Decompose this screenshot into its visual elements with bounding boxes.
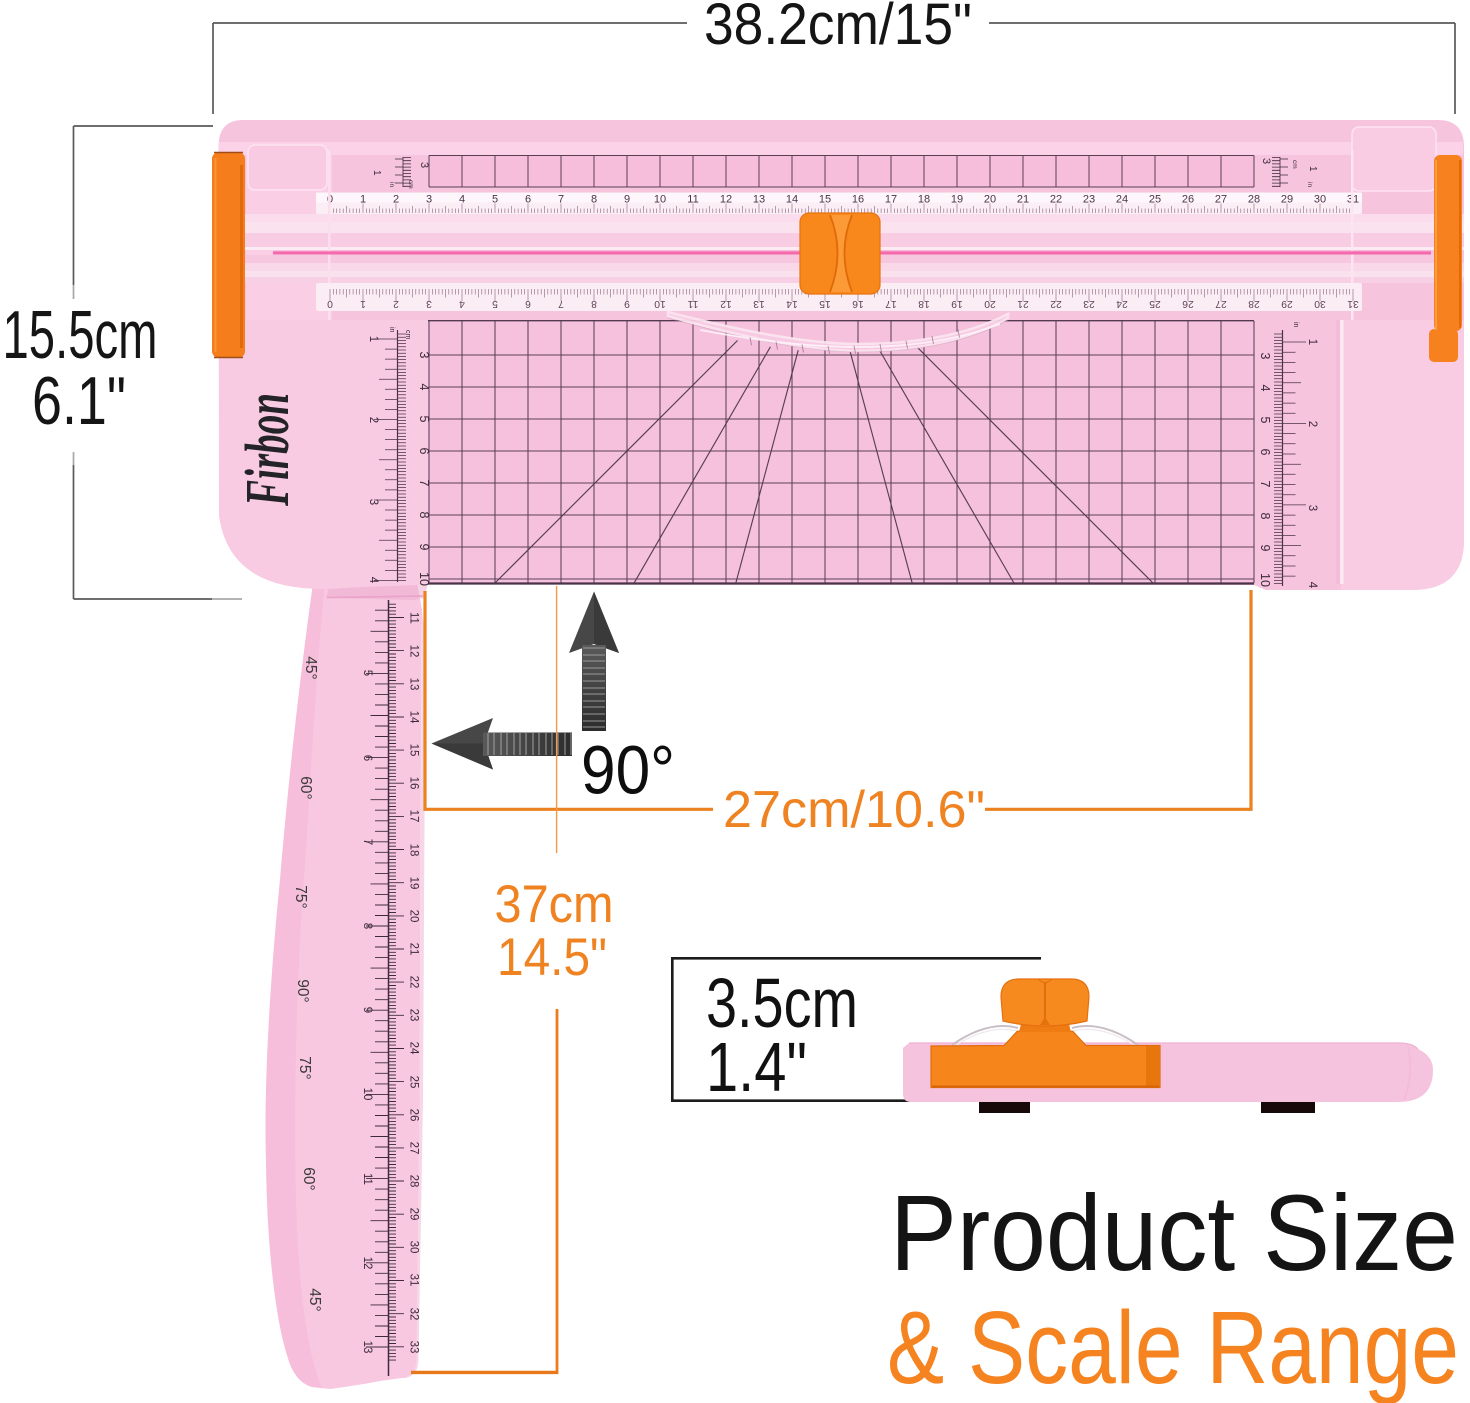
svg-text:10: 10: [654, 298, 666, 309]
svg-text:4: 4: [1258, 385, 1272, 392]
svg-text:13: 13: [753, 298, 765, 309]
svg-text:3: 3: [417, 352, 431, 359]
svg-text:& Scale Range: & Scale Range: [887, 1290, 1459, 1403]
svg-text:9: 9: [1258, 545, 1272, 552]
svg-text:60°: 60°: [297, 776, 314, 799]
svg-text:in: in: [388, 182, 395, 187]
svg-text:19: 19: [951, 298, 963, 309]
svg-text:15: 15: [819, 298, 831, 309]
svg-text:16: 16: [408, 777, 420, 790]
svg-text:38.2cm/15": 38.2cm/15": [704, 0, 972, 57]
svg-text:1: 1: [371, 170, 382, 176]
svg-text:13: 13: [408, 678, 420, 691]
svg-text:14.5": 14.5": [497, 928, 607, 987]
svg-text:26: 26: [408, 1109, 420, 1122]
svg-text:17: 17: [408, 810, 420, 823]
svg-text:3: 3: [426, 298, 432, 309]
svg-text:cm: cm: [407, 180, 414, 189]
svg-text:29: 29: [1281, 298, 1293, 309]
svg-text:3: 3: [1260, 158, 1272, 164]
svg-text:25: 25: [1149, 298, 1161, 309]
svg-text:6: 6: [361, 755, 373, 761]
svg-text:31: 31: [408, 1274, 420, 1287]
svg-text:1: 1: [360, 298, 366, 309]
svg-text:4: 4: [417, 384, 431, 391]
svg-text:2: 2: [1306, 421, 1318, 427]
svg-text:11: 11: [408, 612, 420, 624]
svg-text:18: 18: [918, 298, 930, 309]
svg-text:in: in: [388, 327, 395, 333]
svg-text:75°: 75°: [296, 1056, 313, 1079]
svg-text:25: 25: [408, 1076, 420, 1089]
svg-text:1.4": 1.4": [706, 1028, 807, 1106]
svg-text:27cm/10.6": 27cm/10.6": [723, 781, 985, 839]
svg-text:3: 3: [418, 162, 430, 168]
svg-text:12: 12: [720, 298, 732, 309]
svg-text:1: 1: [1307, 166, 1318, 172]
svg-text:7: 7: [361, 839, 373, 845]
svg-text:6.1": 6.1": [32, 363, 126, 439]
svg-text:7: 7: [558, 298, 564, 309]
svg-text:9: 9: [417, 544, 431, 551]
svg-text:5: 5: [1258, 417, 1272, 424]
svg-text:8: 8: [1258, 513, 1272, 520]
svg-text:32: 32: [408, 1308, 420, 1321]
svg-text:24: 24: [1116, 298, 1128, 309]
svg-text:31: 31: [1347, 298, 1359, 309]
svg-text:12: 12: [361, 1257, 373, 1270]
svg-text:1: 1: [1306, 339, 1318, 345]
svg-text:11: 11: [687, 298, 698, 309]
svg-text:2: 2: [393, 298, 399, 309]
svg-text:10: 10: [417, 572, 431, 586]
svg-text:26: 26: [1182, 298, 1194, 309]
svg-text:4: 4: [459, 298, 465, 309]
svg-text:9: 9: [361, 1007, 373, 1013]
svg-text:37cm: 37cm: [495, 875, 614, 934]
svg-text:14: 14: [408, 711, 420, 724]
svg-text:27: 27: [1215, 298, 1227, 309]
svg-text:4: 4: [367, 577, 379, 584]
svg-text:28: 28: [408, 1175, 420, 1188]
svg-text:Product Size: Product Size: [890, 1172, 1458, 1293]
svg-text:4: 4: [1306, 582, 1318, 589]
svg-text:33: 33: [408, 1341, 420, 1354]
svg-text:9: 9: [624, 298, 630, 309]
svg-text:10: 10: [361, 1088, 373, 1101]
svg-text:21: 21: [408, 943, 420, 956]
svg-text:13: 13: [361, 1341, 373, 1354]
svg-text:6: 6: [525, 298, 531, 309]
svg-text:19: 19: [408, 877, 420, 890]
svg-text:6: 6: [417, 448, 431, 455]
svg-text:11: 11: [361, 1173, 373, 1185]
svg-text:75°: 75°: [292, 885, 309, 908]
svg-text:90°: 90°: [581, 732, 675, 809]
svg-text:6: 6: [1258, 449, 1272, 456]
svg-text:Firbon: Firbon: [234, 393, 302, 507]
svg-text:3: 3: [367, 499, 379, 505]
svg-text:18: 18: [408, 844, 420, 857]
svg-text:3: 3: [1258, 353, 1272, 360]
svg-text:7: 7: [417, 480, 431, 487]
svg-text:28: 28: [1248, 298, 1260, 309]
svg-text:in: in: [1306, 182, 1313, 187]
svg-text:23: 23: [1083, 298, 1095, 309]
svg-text:20: 20: [408, 910, 420, 923]
svg-text:in: in: [1292, 322, 1299, 328]
svg-text:45°: 45°: [302, 656, 319, 679]
svg-text:20: 20: [984, 298, 996, 309]
svg-text:16: 16: [852, 298, 864, 309]
svg-text:30: 30: [1314, 298, 1326, 309]
svg-text:45°: 45°: [306, 1288, 323, 1311]
svg-text:3: 3: [1306, 505, 1318, 511]
svg-text:12: 12: [408, 645, 420, 658]
svg-text:0: 0: [327, 298, 333, 309]
svg-text:10: 10: [1258, 573, 1272, 587]
svg-text:cm: cm: [404, 330, 411, 340]
svg-text:cm: cm: [1291, 160, 1298, 169]
svg-text:5: 5: [492, 298, 498, 309]
svg-text:27: 27: [408, 1142, 420, 1155]
svg-text:15.5cm: 15.5cm: [3, 297, 158, 373]
svg-text:14: 14: [786, 298, 798, 309]
svg-text:21: 21: [1017, 298, 1029, 309]
svg-text:30: 30: [408, 1241, 420, 1254]
svg-text:5: 5: [417, 416, 431, 423]
svg-text:15: 15: [408, 744, 420, 757]
svg-text:8: 8: [361, 923, 373, 929]
svg-text:24: 24: [408, 1042, 420, 1055]
svg-text:22: 22: [1050, 298, 1062, 309]
svg-text:60°: 60°: [300, 1167, 317, 1190]
svg-text:22: 22: [408, 976, 420, 989]
svg-text:5: 5: [361, 670, 373, 676]
svg-text:23: 23: [408, 1009, 420, 1022]
svg-text:8: 8: [591, 298, 597, 309]
svg-text:17: 17: [885, 298, 897, 309]
svg-text:90°: 90°: [294, 979, 311, 1002]
svg-text:8: 8: [417, 512, 431, 519]
svg-text:2: 2: [367, 417, 379, 423]
svg-text:29: 29: [408, 1208, 420, 1221]
svg-text:1: 1: [367, 336, 379, 342]
svg-text:7: 7: [1258, 481, 1272, 488]
